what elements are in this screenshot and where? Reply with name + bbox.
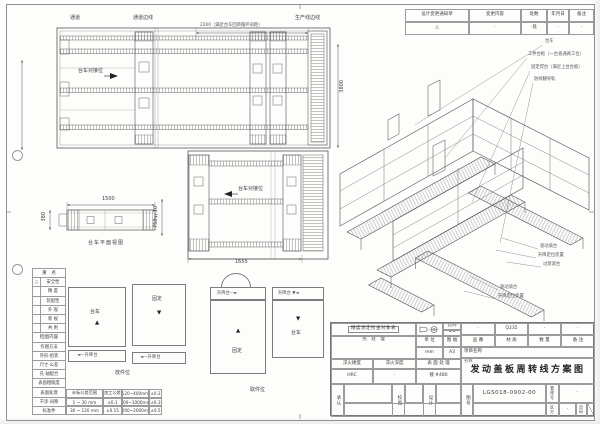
drawing-no-value: LGS018-0902-00 xyxy=(473,384,546,403)
approve-sign-cell xyxy=(344,384,392,403)
detail-strip-c-label: 升降台—► xyxy=(217,292,238,297)
corridor-label: 通道 xyxy=(70,16,80,22)
drawing-no-sub-cell xyxy=(473,403,546,417)
unit-value: mm xyxy=(416,347,443,359)
manage-no-label: 管理号 xyxy=(546,384,559,403)
dim-380: 380 xyxy=(42,212,48,222)
tol-cell: ±0.5 xyxy=(149,406,162,415)
depth-value: · xyxy=(373,369,416,384)
rev-value: △ xyxy=(405,22,469,35)
qty-value: · xyxy=(528,323,561,335)
callout-transfer-roller: 过渡滚台 xyxy=(543,263,560,268)
rev-value: · xyxy=(469,22,521,35)
tol-cell: 400~1000mm xyxy=(122,398,149,407)
drawing-title: 发动盖板周转线方案图 xyxy=(470,366,585,375)
check-mark xyxy=(33,306,41,314)
class-label: 区分 xyxy=(546,403,559,417)
trolley-view-caption: 台车平面视图 xyxy=(88,241,124,247)
check-item: 外 观 xyxy=(41,306,65,314)
checklist-section2: 检图内容 xyxy=(33,333,65,341)
caption-pick-position: 取件位 xyxy=(250,388,265,394)
callout-fixed-table: 固定焊台（满足上台台板） xyxy=(531,66,583,71)
callout-work-plate: 工件台板（一台直通两工位） xyxy=(528,53,584,58)
material-value: Q235 xyxy=(495,323,528,335)
rev-value: · xyxy=(547,22,569,35)
sign-row-cell: · xyxy=(344,403,461,417)
rev-header: 设计变更通知单 xyxy=(405,9,469,22)
check-mark: ○ xyxy=(33,278,41,286)
check-mark xyxy=(33,315,41,323)
design-sign-cell xyxy=(436,384,461,403)
detail-strip-b-label: ◄—升降台 xyxy=(140,356,161,361)
check-item2: 外形·组装 xyxy=(33,352,65,360)
arrow-up-icon: ▲ xyxy=(95,321,99,327)
project-name-label: 项目名称 xyxy=(461,347,595,358)
detail-box-d-label: 台车 xyxy=(291,331,301,337)
accuracy-check-cell: 精度测定检查对象表 xyxy=(331,323,416,336)
title-block: 精度测定检查对象表 比例 1/5 · Q235 · · 品 番 材 质 数 量 … xyxy=(330,322,594,416)
detail-box-fixed-c: ▲ 固定 xyxy=(210,300,266,374)
projection-symbol-icon xyxy=(419,325,441,334)
tol-cell: ±0.1 xyxy=(103,398,122,407)
projection-symbol-cell xyxy=(416,323,443,336)
arrow-up-icon: ▲ xyxy=(236,329,240,335)
checklist-title: 重 点 xyxy=(33,269,65,277)
tol-cell: 加工公差 xyxy=(103,389,122,398)
dim-2200: 2200（满足台车回转循环间距） xyxy=(200,24,263,29)
drawing-sheet: 通道 通道边线 2200（满足台车回转循环间距） 生产线边线 台车对接位 380… xyxy=(0,0,600,424)
tol-cell: 1 ~ 30 mm xyxy=(66,398,103,407)
detail-strip-lift-c: 升降台—► xyxy=(210,287,266,300)
production-edge-label: 生产线边线 xyxy=(295,16,320,22)
remark-value: · xyxy=(561,323,595,335)
surface-value: 镀 #480 xyxy=(416,369,461,384)
checklist-table: 重 点 ○安全性 精 度 装配性 外 观 新 规 共 用 检图内容 作图方法 外… xyxy=(32,268,66,415)
dim-3800: 3800 xyxy=(340,80,346,93)
check-item: 装配性 xyxy=(41,297,65,305)
callout-drive-roller-2: 驱动滚台 xyxy=(500,286,517,291)
accuracy-check-label: 精度测定检查对象表 xyxy=(348,326,399,334)
tol-cell: 30 ~ 120 mm xyxy=(66,406,103,415)
class-value: · xyxy=(559,403,576,417)
detail-strip-a-label: ◄—升降台 xyxy=(77,354,98,359)
tol-cell: 1000~2000mm xyxy=(122,406,149,415)
callout-lift-locator: 升降定位装置 xyxy=(538,254,564,259)
format-label: 图 幅 xyxy=(443,336,461,347)
hardness-value: HRC xyxy=(331,369,373,384)
tol-cell: ±0.3 xyxy=(149,398,162,407)
rev-header: 处数 xyxy=(521,9,547,22)
material-label: 材 质 xyxy=(495,335,528,347)
format-value: A3 xyxy=(443,347,461,359)
arrow-down-icon: ▼ xyxy=(157,311,161,317)
heat-treatment-label: 热 处 理 xyxy=(331,336,416,359)
check-item2: 表面粗糙度 xyxy=(33,379,65,387)
tol-cell: 未标公差范围 xyxy=(66,389,103,398)
check-mark xyxy=(33,324,41,332)
check-mark xyxy=(33,297,41,305)
check-item2: 标准件 xyxy=(33,407,65,416)
detail-strip-lift-a: ◄—升降台 xyxy=(68,350,126,362)
drawing-name-cell: 名称 发动盖板周转线方案图 xyxy=(461,358,595,384)
tol-cell: 120~400mm xyxy=(122,389,149,398)
trolley-plan-view xyxy=(55,198,167,240)
plan-view-lower xyxy=(183,147,333,265)
dock-label-lower: 台车对接位 xyxy=(238,187,263,193)
check-item2: 干涉·间隙 xyxy=(33,398,65,406)
detail-box-trolley-d: ▼ 台车 xyxy=(272,300,324,358)
rev-header: 年月日 xyxy=(547,9,569,22)
dim-750: 750±10 xyxy=(154,206,160,228)
detail-box-b-label: 固定 xyxy=(152,297,162,303)
rev-value: · xyxy=(569,22,594,35)
part-no-label: 品 番 xyxy=(461,335,495,347)
punch-hole-icon xyxy=(12,264,23,275)
tol-cell: ±0.2 xyxy=(149,389,162,398)
drawing-no-label: 图号 xyxy=(461,384,473,417)
rev-value: ·处 xyxy=(521,22,547,35)
manage-no-value: · xyxy=(559,384,595,403)
qty-label: 数 量 xyxy=(528,335,561,347)
callout-trolley: 台车 xyxy=(545,40,554,45)
check-item: 新 规 xyxy=(41,315,65,323)
unit-label: 单 位 xyxy=(416,336,443,347)
check-item2: 尺寸·公差 xyxy=(33,361,65,369)
part-no-value: · xyxy=(461,323,495,335)
callout-lift-locator-2: 升降定位装置 xyxy=(498,295,524,300)
surface-label: 表 面 处 理 xyxy=(416,359,461,369)
name-label: 名称 xyxy=(464,360,473,365)
dock-label-top: 台车对接位 xyxy=(78,69,103,75)
rev-header: 备注 xyxy=(569,9,594,22)
check-item2: 孔·轴配合 xyxy=(33,370,65,378)
check-mark xyxy=(33,287,41,295)
detail-strip-lift-d: 升降台 ▼◄ xyxy=(272,287,324,300)
detail-box-c-label: 固定 xyxy=(232,349,242,355)
detail-box-trolley-a: 台车 ▲ xyxy=(68,287,126,347)
page-label: 页码 xyxy=(576,403,587,417)
check-sign-cell xyxy=(405,384,423,403)
check-item: 精 度 xyxy=(41,287,65,295)
approve-label: 承认 xyxy=(331,384,344,417)
detail-box-fixed-b: 固定 ▼ xyxy=(132,284,186,346)
rev-header: 变更内容 xyxy=(469,9,521,22)
revision-table: 设计变更通知单 变更内容 处数 年月日 备注 △ · ·处 · · xyxy=(405,9,594,35)
detail-box-a-label: 台车 xyxy=(90,310,100,316)
dim-1500: 1500 xyxy=(102,197,115,203)
depth-label: 淬火深度 xyxy=(373,359,416,369)
page-diagonal-cell xyxy=(587,403,595,417)
detail-strip-lift-b: ◄—升降台 xyxy=(132,352,186,364)
caption-place-position: 放件位 xyxy=(115,371,130,377)
check-item: 安全性 xyxy=(41,278,65,286)
check-item: 共 用 xyxy=(41,324,65,332)
tolerance-table: 未标公差范围 加工公差 120~400mm ±0.2 1 ~ 30 mm ±0.… xyxy=(66,389,162,415)
tol-cell: ±0.15 xyxy=(103,406,122,415)
check-item2: 作图方法 xyxy=(33,343,65,351)
isometric-view xyxy=(333,46,595,336)
callout-drive-roller: 驱动滚台 xyxy=(540,245,557,250)
hardness-label: 淬火硬度 xyxy=(331,359,373,369)
arrow-down-icon: ▼ xyxy=(296,317,300,323)
corridor-edge-label: 通道边线 xyxy=(133,16,153,22)
callout-guide-rail: 防倾翻导轨 xyxy=(534,78,555,83)
plan-view-top xyxy=(50,20,335,155)
check-item2: 表面处理 xyxy=(33,388,65,396)
punch-hole-icon xyxy=(12,150,23,161)
detail-strip-d-label: 升降台 ▼◄ xyxy=(278,292,299,297)
dim-1655: 1655 xyxy=(235,260,248,266)
remark-label: 备 注 xyxy=(561,335,595,347)
